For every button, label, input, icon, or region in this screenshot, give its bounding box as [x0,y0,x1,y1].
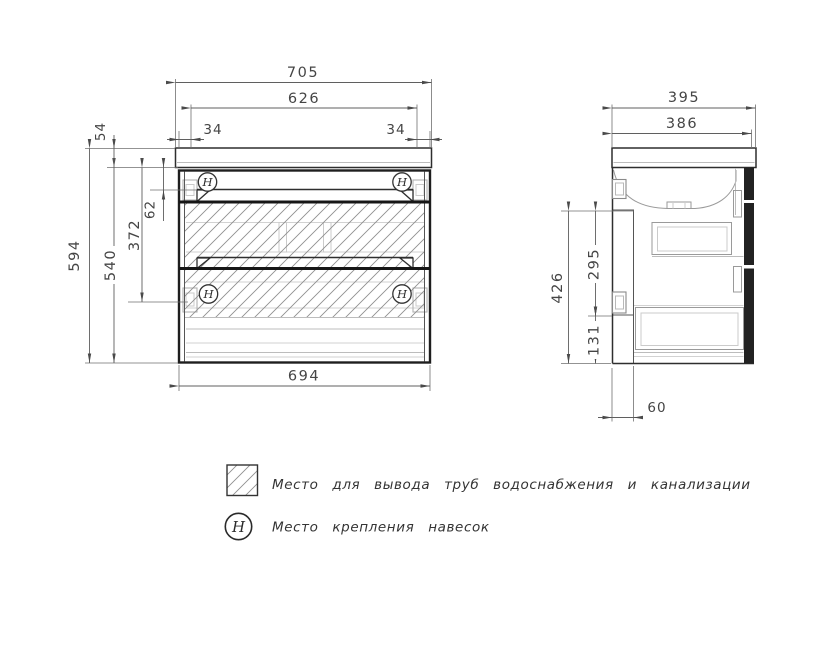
dim-cabinet-width-text: 694 [288,369,320,385]
front-cabinet: H H H H [179,171,430,363]
dim-service-depth-text: 60 [647,400,666,416]
dim-mount-offset-left-text: 34 [203,122,222,138]
side-drawer-front-bottom [744,269,754,364]
side-cabinet [613,168,755,364]
dim-countertop-thickness-text: 54 [93,122,109,141]
dim-width-overall-text: 705 [287,65,319,81]
dim-height-overall-text: 594 [67,239,83,271]
dim-depth-overall-text: 395 [668,90,700,106]
dim-cabinet-height: 540 [102,246,120,284]
hanger-letter: H [201,175,213,189]
legend-item-hatch: Место для вывода труб водоснабжения и ка… [227,465,751,496]
legend-hatch-label: Место для вывода труб водоснабжения и ка… [272,477,751,493]
technical-drawing-sheet: H H H H 705 626 [0,0,830,663]
dim-service-total-text: 426 [550,271,566,303]
dim-top-section: 62 [142,196,159,224]
dim-depth-body-text: 386 [666,116,698,132]
legend-hanger-label: Место крепления навесок [272,520,490,536]
side-upper-drawer-box [652,223,744,257]
dim-top-section-text: 62 [143,200,159,219]
side-sink-drain [667,202,691,209]
drawer-box-inner [658,227,728,251]
side-dimensions: 395 386 426 295 1 [549,90,756,422]
hanger-letter: H [396,175,408,189]
hanger-mark-mid-left: H [199,285,217,303]
side-bracket-bottom [613,292,627,313]
dim-cabinet-height-text: 540 [103,249,119,281]
bracket-inner [416,185,424,196]
dim-mount-drop: 372 [126,216,144,254]
side-countertop [612,148,756,168]
dim-service-lower-text: 131 [587,324,603,356]
dim-mount-offset-right-text: 34 [386,122,405,138]
side-sink-bowl-curve [614,170,737,209]
hanger-letter: H [396,287,408,301]
drawing-canvas: H H H H 705 626 [0,0,830,663]
side-countertop-outline [612,148,756,168]
hanger-mark-top-left: H [198,173,216,191]
front-view: H H H H 705 626 [66,65,443,391]
dim-height-overall: 594 [66,237,84,275]
dim-service-upper-text: 295 [587,248,603,280]
side-lower-drawer-box [634,306,744,357]
side-bracket-top [613,180,627,199]
legend-item-hanger: H Место крепления навесок [225,513,490,539]
front-countertop [176,148,432,168]
side-drawer-front-top [744,168,754,201]
legend: Место для вывода труб водоснабжения и ка… [225,465,750,540]
dim-service-upper: 295 [585,245,603,283]
hanger-legend-letter: H [231,518,246,536]
hanger-mark-mid-right: H [393,285,411,303]
side-front-fix-lower [734,267,742,293]
side-view: 395 386 426 295 1 [549,90,757,422]
side-front-fix-upper [734,191,742,218]
dim-mount-span-text: 626 [288,91,320,107]
front-service-hatch-lower [185,270,425,318]
dim-countertop-thickness: 54 [93,118,110,146]
front-countertop-outline [176,148,432,168]
drawer-box-outer [636,308,744,350]
dim-mount-drop-text: 372 [127,219,143,251]
front-rail-top [197,190,413,202]
drawer-box-inner [641,313,738,346]
dim-service-total: 426 [549,269,567,307]
dim-service-lower: 131 [585,321,603,359]
hanger-mark-top-right: H [393,173,411,191]
side-drawer-front-middle [744,203,754,265]
hanger-letter: H [202,287,214,301]
hatch-legend-swatch [227,465,258,496]
